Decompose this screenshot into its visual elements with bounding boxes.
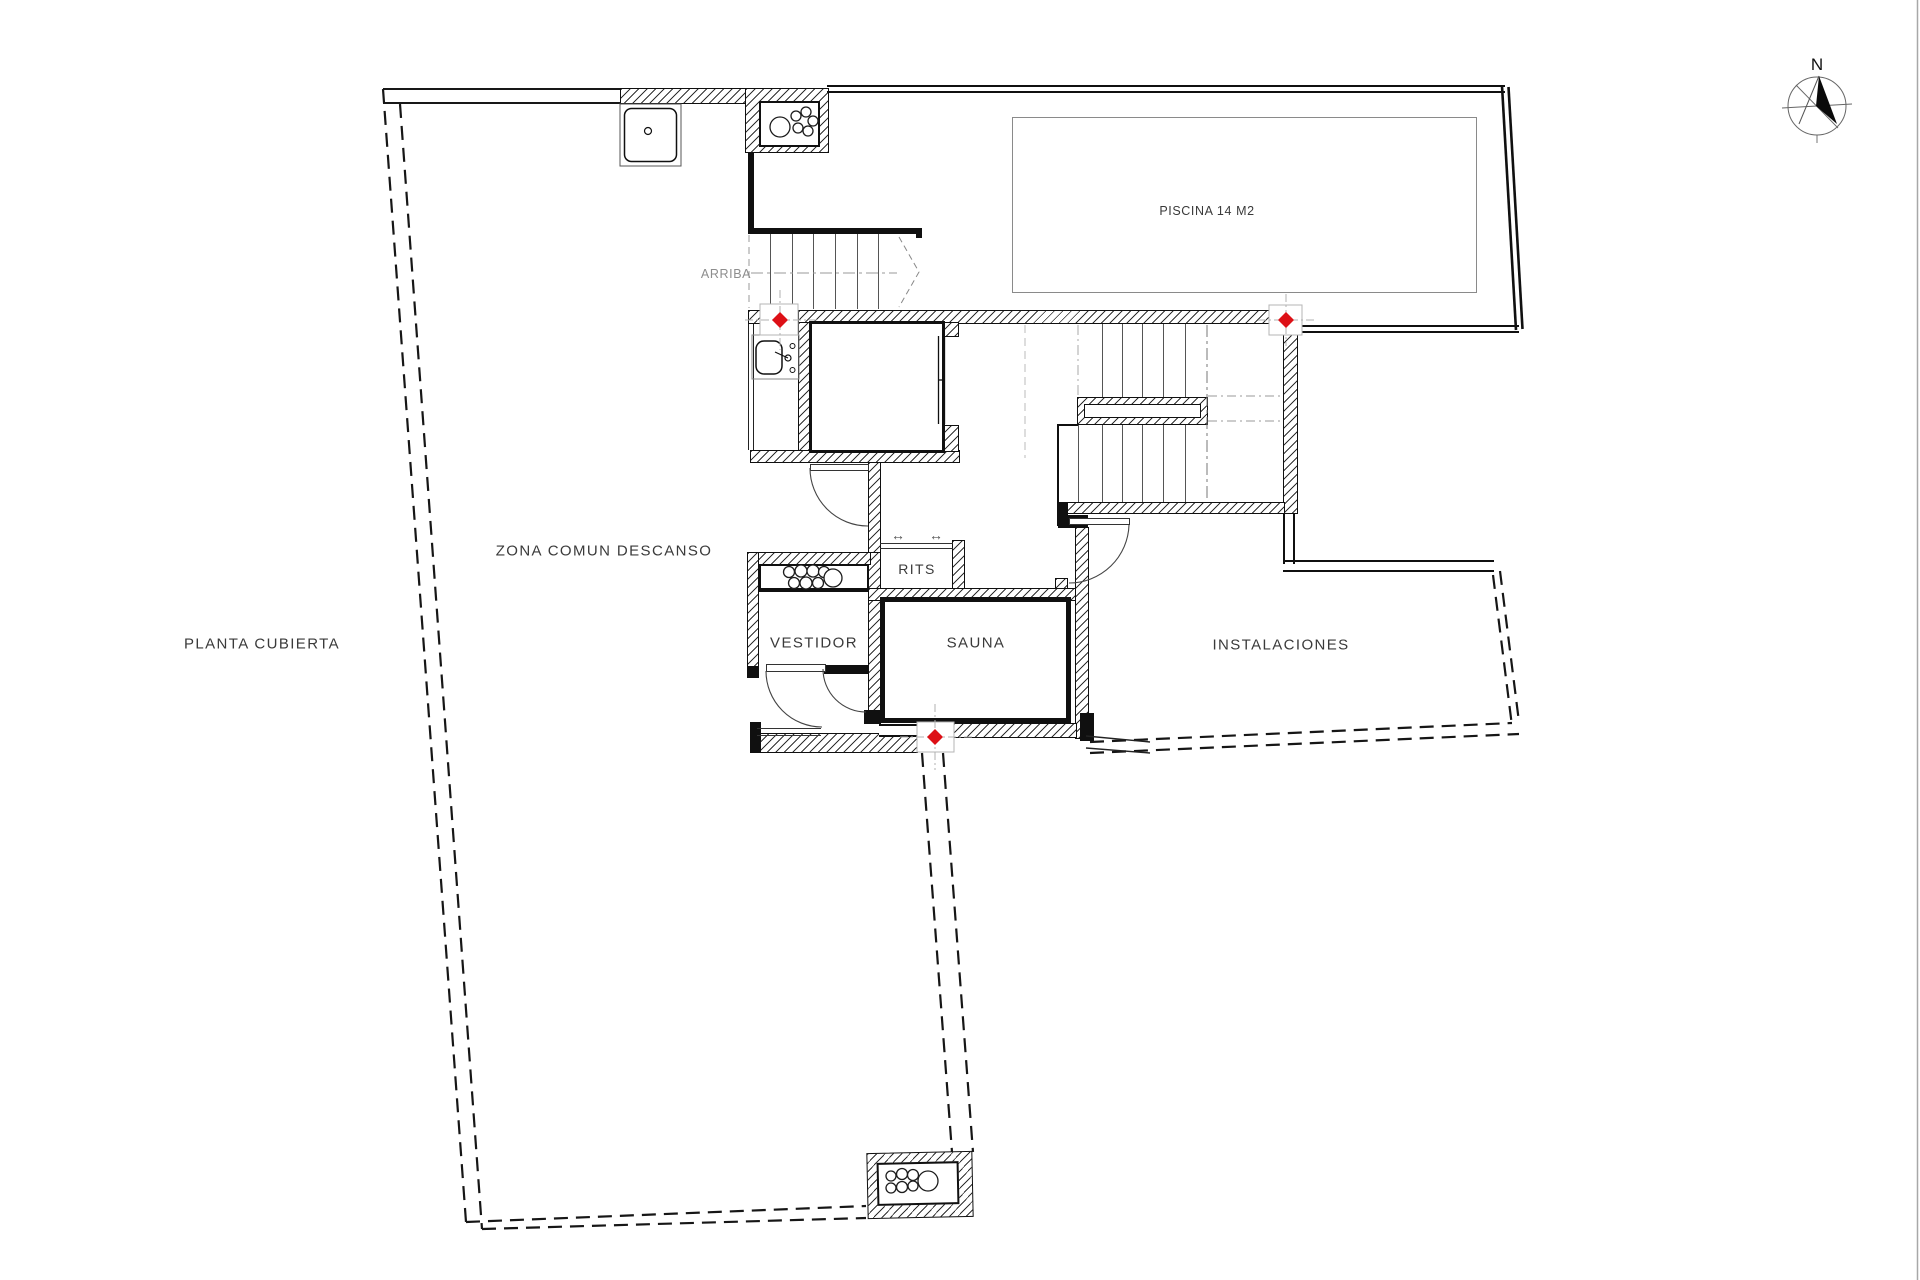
red-diamond-icon bbox=[772, 312, 1294, 745]
elevator-door bbox=[938, 336, 945, 424]
stair-marks bbox=[749, 235, 1283, 501]
floor-plan-canvas: N PLANTA CUBIERTA ZONA COMUN DESCANSO PI… bbox=[0, 0, 1920, 1280]
pool-terrace-right-edge bbox=[1502, 86, 1523, 330]
vent-arrow-icon: ↔ bbox=[891, 527, 905, 543]
label-stairs-up: ARRIBA bbox=[701, 267, 751, 281]
label-installations: INSTALACIONES bbox=[1212, 637, 1349, 654]
label-common-zone: ZONA COMUN DESCANSO bbox=[496, 543, 713, 560]
compass: N bbox=[1782, 55, 1852, 143]
north-label: N bbox=[1811, 55, 1823, 74]
shower-tray bbox=[620, 104, 681, 166]
marker-crosshairs bbox=[745, 290, 1315, 770]
label-dressing-room: VESTIDOR bbox=[770, 635, 858, 652]
door-arcs bbox=[766, 468, 1129, 727]
label-sauna: SAUNA bbox=[947, 635, 1006, 652]
label-rits: RITS bbox=[898, 561, 936, 577]
label-pool: PISCINA 14 M2 bbox=[1159, 204, 1254, 218]
marker-boxes bbox=[760, 304, 1302, 752]
boundary-dashed-lines bbox=[383, 89, 1519, 1229]
sink-fixture bbox=[752, 335, 799, 379]
vent-arrow-icon: ↔ bbox=[929, 527, 943, 543]
plan-title: PLANTA CUBIERTA bbox=[184, 636, 340, 653]
